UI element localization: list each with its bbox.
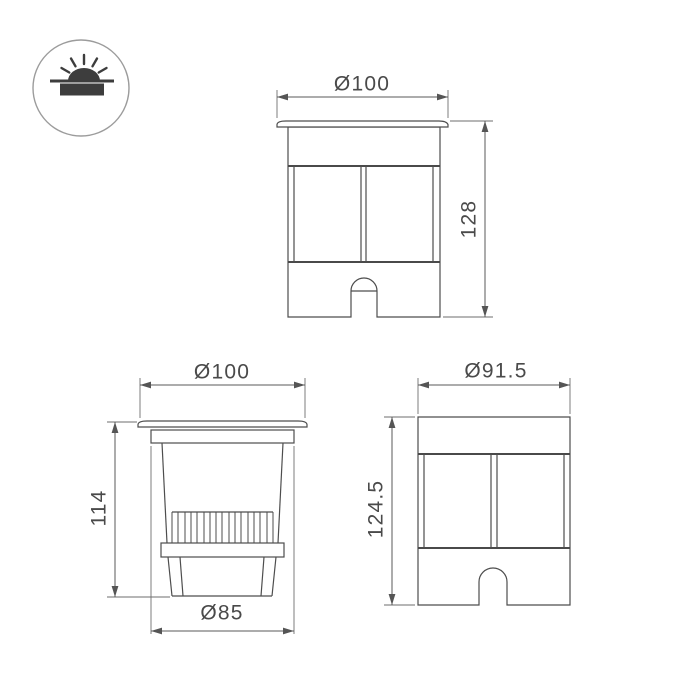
front-height-label: 128: [458, 200, 481, 239]
technical-drawing-canvas: Ø100 128 Ø100: [0, 0, 700, 700]
rear-diameter-dimension: Ø91.5: [418, 360, 570, 415]
inground-light-icon: [33, 40, 129, 136]
section-height-label: 114: [88, 489, 111, 526]
front-view-drawing: Ø100 128: [277, 73, 493, 318]
front-flange: [277, 121, 448, 127]
section-heatsink-fins: [172, 512, 273, 543]
section-diameter-dimension: Ø100: [140, 361, 305, 419]
drawing-svg: Ø100 128 Ø100: [0, 0, 700, 700]
section-flange: [138, 421, 307, 427]
front-body: [288, 127, 440, 317]
rear-height-label: 124.5: [365, 480, 388, 539]
front-diameter-label: Ø100: [334, 73, 390, 96]
rear-body: [418, 417, 570, 605]
section-view-drawing: Ø100 114: [88, 361, 308, 635]
rear-height-dimension: 124.5: [365, 417, 416, 605]
front-height-dimension: 128: [443, 121, 493, 317]
section-collar: [151, 430, 294, 443]
section-rear-housing: [168, 557, 276, 596]
section-plate: [161, 543, 284, 557]
section-base-diameter-label: Ø85: [200, 602, 243, 625]
section-height-dimension: 114: [88, 422, 171, 597]
front-diameter-dimension: Ø100: [277, 73, 448, 119]
rear-view-drawing: Ø91.5 124.5: [365, 360, 571, 606]
section-diameter-label: Ø100: [194, 361, 250, 384]
rear-diameter-label: Ø91.5: [464, 360, 527, 383]
